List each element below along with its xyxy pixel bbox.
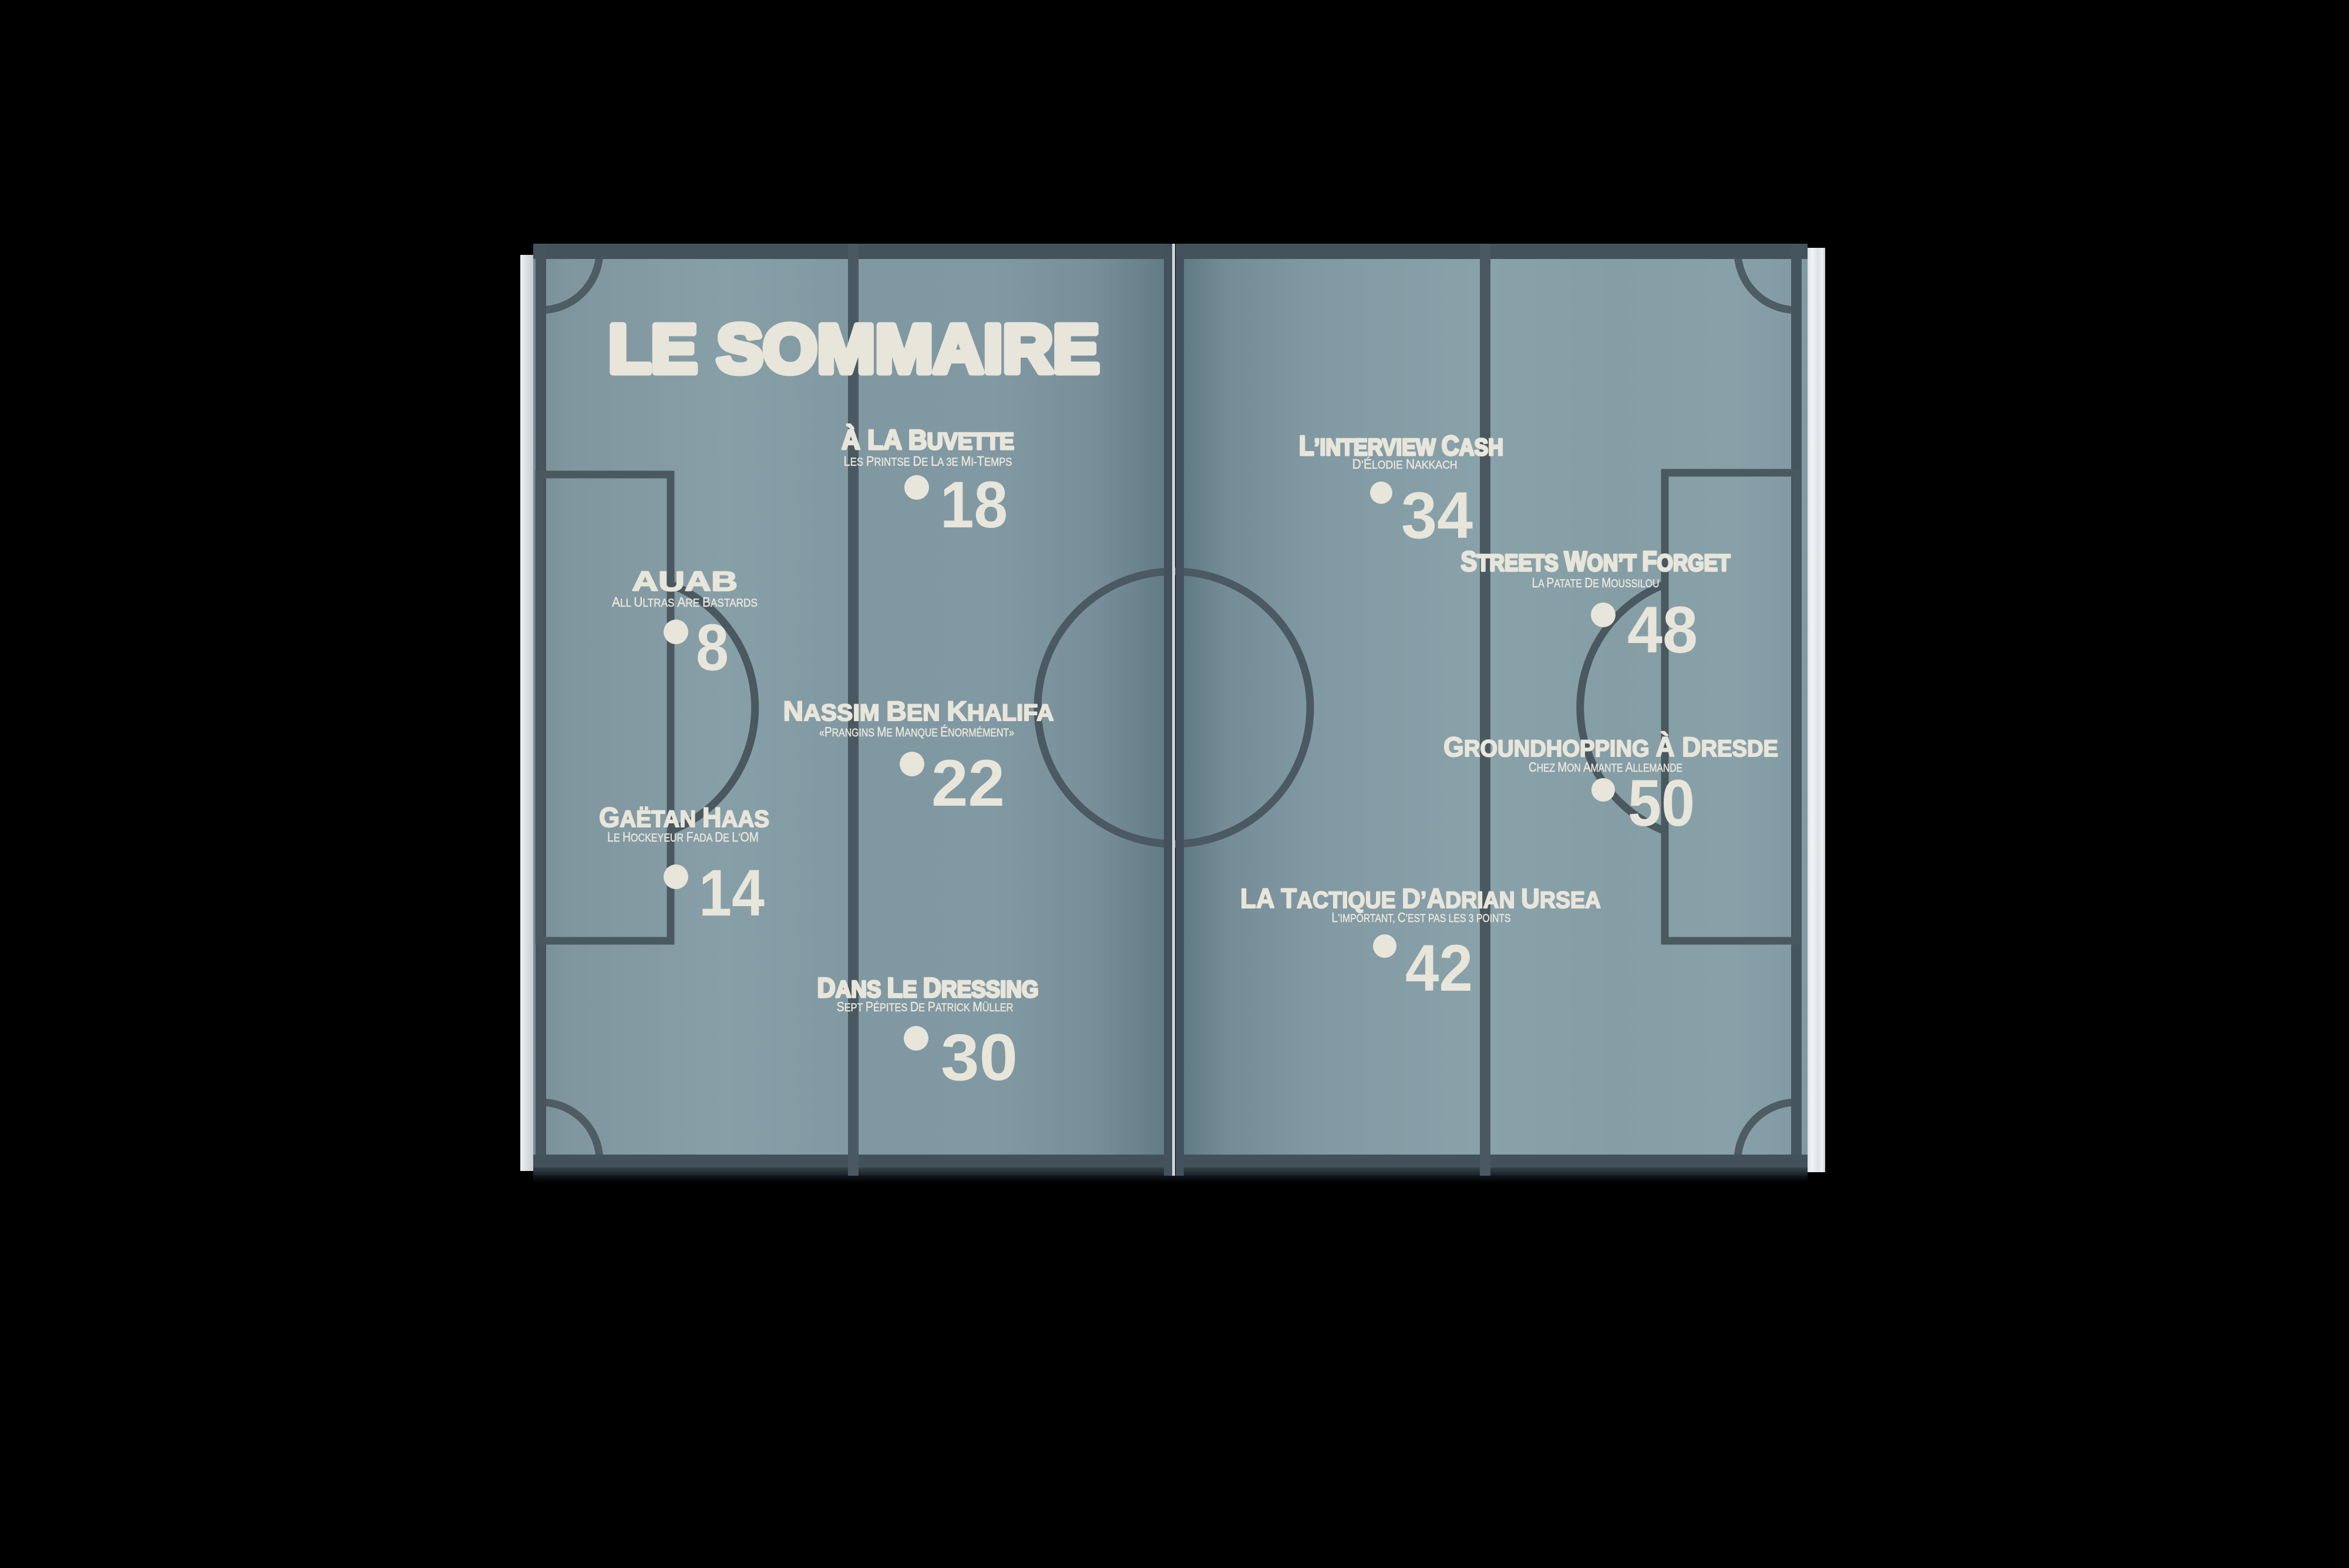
svg-text:8: 8 (696, 611, 729, 684)
svg-text:GROUNDHOPPING À DRESDE: GROUNDHOPPING À DRESDE (1443, 731, 1778, 762)
svg-text:LA TACTIQUE D’ADRIAN URSEA: LA TACTIQUE D’ADRIAN URSEA (1240, 883, 1601, 914)
svg-text:NASSIM BEN KHALIFA: NASSIM BEN KHALIFA (783, 695, 1054, 726)
svg-text:À LA BUVETTE: À LA BUVETTE (842, 424, 1014, 455)
svg-text:18: 18 (940, 468, 1008, 541)
svg-text:14: 14 (699, 856, 765, 930)
svg-text:34: 34 (1401, 479, 1473, 552)
svg-text:GAËTAN HAAS: GAËTAN HAAS (599, 802, 769, 833)
svg-text:30: 30 (941, 1021, 1018, 1094)
svg-text:STREETS WON’T FORGET: STREETS WON’T FORGET (1461, 546, 1731, 577)
svg-text:AUAB: AUAB (632, 566, 738, 597)
svg-text:22: 22 (931, 746, 1005, 820)
svg-text:42: 42 (1405, 931, 1473, 1005)
svg-text:48: 48 (1627, 593, 1698, 667)
svg-text:LE SOMMAIRE: LE SOMMAIRE (608, 311, 1099, 387)
svg-text:L’INTERVIEW CASH: L’INTERVIEW CASH (1299, 430, 1503, 461)
svg-text:50: 50 (1628, 766, 1695, 840)
